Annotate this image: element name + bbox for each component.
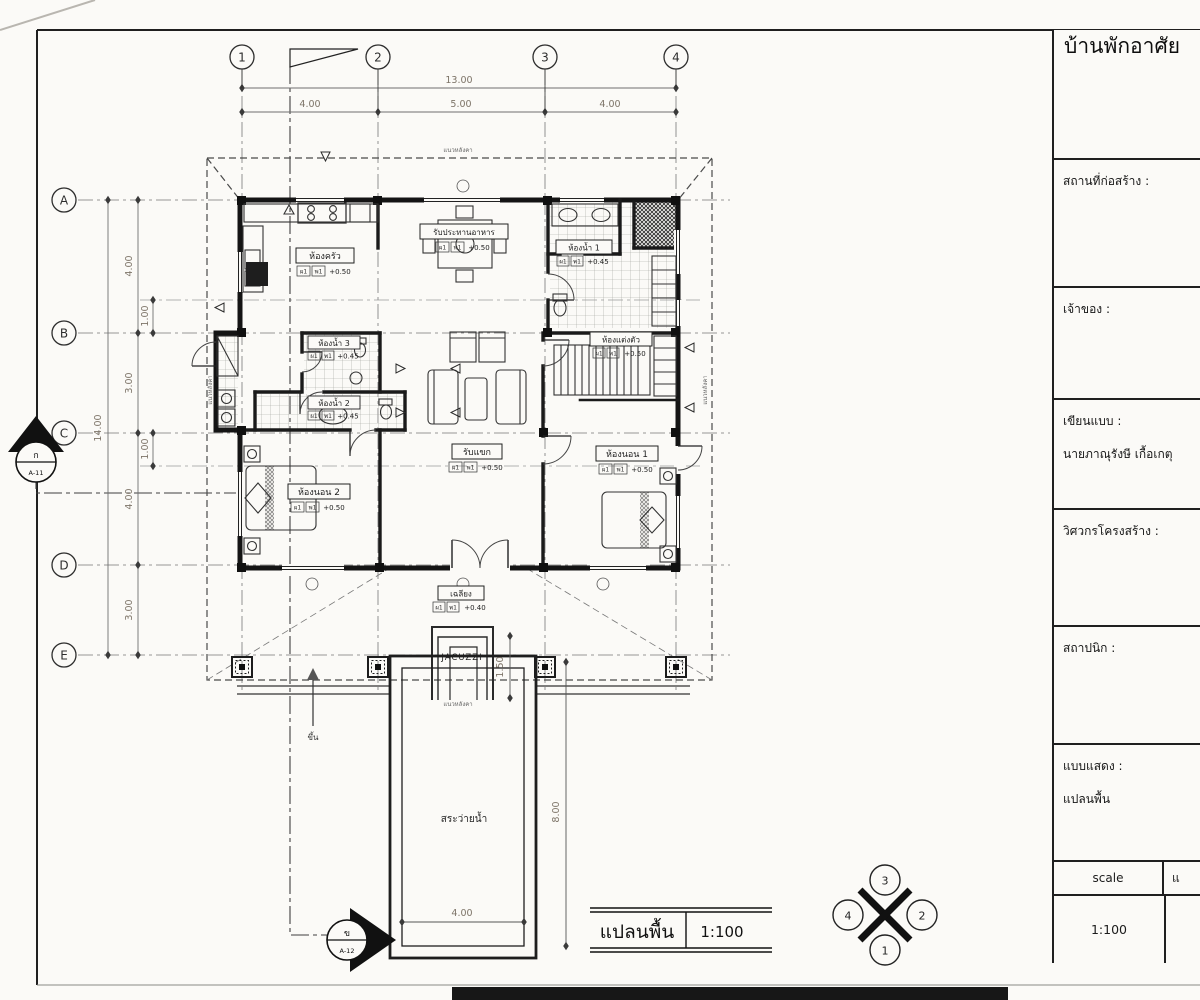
floor-code: พ1	[609, 351, 617, 358]
dimension-pool-width: 4.00	[399, 908, 527, 926]
title-block-scale-table: scale แ 1:100	[1054, 862, 1200, 963]
grid-row-e: E	[60, 649, 68, 663]
floor-code: พ1	[449, 605, 457, 612]
draftsman-label: เขียนแบบ :	[1054, 400, 1200, 431]
scan-edge-band	[452, 987, 1008, 1000]
dim-left-3: 4.00	[124, 488, 135, 509]
room-name: ห้องครัว	[309, 251, 341, 262]
title-block-drawing-type: แบบแสดง : แปลนพื้น	[1054, 745, 1200, 862]
floor-level: +0.45	[587, 258, 608, 266]
section-b-letter: ข	[344, 929, 350, 939]
dim-top-1: 4.00	[299, 99, 320, 110]
floor-code: พ1	[617, 467, 625, 474]
title-block-site: สถานที่ก่อสร้าง :	[1054, 160, 1200, 288]
section-lines	[36, 66, 329, 935]
elev-4: 4	[845, 910, 852, 923]
floor-code: พ1	[573, 259, 581, 266]
bedroom1-furniture	[602, 468, 676, 562]
drawing-sheet: แนวหลังคา แนวหลังคา แนวหลังคา แนวหลังคา	[0, 0, 1200, 1000]
title-block-architect: สถาปนิก :	[1054, 627, 1200, 745]
wall-code: ผ1	[452, 465, 460, 472]
wall-code: ผ1	[294, 505, 302, 512]
section-a-letter: ก	[33, 451, 38, 461]
scale-value: 1:100	[1054, 896, 1166, 963]
site-label: สถานที่ก่อสร้าง :	[1054, 160, 1200, 191]
grid-row-c: C	[60, 427, 68, 441]
drawing-title: แปลนพื้น 1:100	[590, 908, 772, 952]
floor-code: พ1	[454, 245, 462, 252]
wall-code: ผ1	[439, 245, 447, 252]
wall-code: ผ1	[435, 605, 443, 612]
dim-sub-1: 1.00	[140, 305, 151, 326]
dim-top-3: 4.00	[599, 99, 620, 110]
title-block-engineer: วิศวกรโครงสร้าง :	[1054, 510, 1200, 627]
roof-line-label-bottom: แนวหลังคา	[443, 701, 472, 708]
floor-level: +0.50	[624, 350, 645, 358]
room-label-kitchen: ห้องครัว ผ1 พ1 +0.50	[296, 248, 354, 276]
sheet-border	[0, 0, 1200, 1000]
drawing-type-value: แปลนพื้น	[1054, 776, 1200, 809]
title-block-draftsman: เขียนแบบ : นายภาณุรังษี เกื้อเกตุ	[1054, 400, 1200, 510]
project-title: บ้านพักอาศัย	[1054, 30, 1180, 58]
section-a-ref: A-11	[29, 469, 44, 477]
dim-sub-2: 1.00	[140, 438, 151, 459]
engineer-label: วิศวกรโครงสร้าง :	[1054, 510, 1200, 541]
roof-line-label-right: แนวหลังคา	[702, 375, 709, 404]
room-label-porch: เฉลียง ผ1 พ1 +0.40	[433, 586, 486, 612]
pool-label: สระว่ายน้ำ	[441, 811, 487, 825]
owner-label: เจ้าของ :	[1054, 288, 1200, 319]
dimensions-top: 13.00 4.00 5.00 4.00	[239, 75, 679, 116]
main-entrance-door	[450, 540, 510, 572]
grid-row-d: D	[59, 559, 68, 573]
grid-row-b: B	[60, 327, 68, 341]
dining-table	[423, 206, 506, 282]
room-label-dining: รับประทานอาหาร ผ1 พ1 +0.50	[420, 224, 508, 252]
dimensions-left: 14.00 4.00 3.00 4.00 3.00 1.00 1.00	[93, 196, 156, 659]
dim-pool-h: 8.00	[551, 801, 562, 822]
grid-col-4: 4	[672, 51, 680, 65]
room-name: ห้องนอน 2	[298, 487, 340, 498]
dim-left-4: 3.00	[124, 599, 135, 620]
floor-code: พ1	[324, 353, 332, 360]
room-name: ห้องแต่งตัว	[602, 336, 640, 345]
elev-3: 3	[882, 875, 889, 888]
dim-porch: 1.50	[495, 656, 506, 677]
up-label: ขึ้น	[308, 731, 319, 742]
grid-col-3: 3	[541, 51, 549, 65]
grid-lines	[78, 70, 730, 690]
floor-code: พ1	[324, 413, 332, 420]
dim-top-total: 13.00	[445, 75, 472, 86]
dim-pool-w: 4.00	[451, 908, 472, 919]
floor-level: +0.50	[481, 464, 502, 472]
title-block-project: บ้านพักอาศัย	[1054, 30, 1200, 160]
sheet-header: แ	[1164, 862, 1200, 896]
dim-left-1: 4.00	[124, 255, 135, 276]
scale-header: scale	[1054, 862, 1164, 896]
title-block: บ้านพักอาศัย สถานที่ก่อสร้าง : เจ้าของ :…	[1052, 30, 1200, 963]
floor-level: +0.50	[323, 504, 344, 512]
draftsman-name: นายภาณุรังษี เกื้อเกตุ	[1054, 431, 1200, 464]
floor-code: พ1	[467, 465, 475, 472]
section-b-ref: A-12	[340, 947, 355, 955]
room-name: ห้องน้ำ 1	[568, 242, 600, 253]
room-label-dressing: ห้องแต่งตัว ผ1 พ1 +0.50	[590, 332, 652, 358]
dim-top-2: 5.00	[450, 99, 471, 110]
dim-left-2: 3.00	[124, 372, 135, 393]
room-label-bath2: ห้องน้ำ 2 ผ1 พ1 +0.45	[308, 396, 360, 421]
wall-code: ผ1	[595, 351, 603, 358]
jacuzzi-label: JACUZZI	[440, 653, 482, 663]
bedroom2-furniture	[244, 446, 316, 554]
room-name: รับประทานอาหาร	[433, 228, 495, 237]
drawing-title-scale: 1:100	[700, 923, 743, 941]
room-label-living: รับแขก ผ1 พ1 +0.50	[449, 444, 503, 472]
section-flag	[290, 49, 358, 67]
dim-left-total: 14.00	[93, 414, 104, 441]
wall-code: ผ1	[602, 467, 610, 474]
grid-col-2: 2	[374, 51, 382, 65]
room-name: ห้องน้ำ 2	[318, 397, 350, 408]
grid-col-1: 1	[238, 51, 246, 65]
floor-level: +0.40	[464, 604, 485, 612]
drawing-title-text: แปลนพื้น	[600, 918, 674, 943]
floor-level: +0.50	[631, 466, 652, 474]
title-block-owner: เจ้าของ :	[1054, 288, 1200, 400]
steps-up: ขึ้น	[307, 668, 319, 742]
room-name: รับแขก	[463, 448, 491, 458]
floor-plan-canvas: แนวหลังคา แนวหลังคา แนวหลังคา แนวหลังคา	[0, 0, 1200, 1000]
room-name: เฉลียง	[450, 590, 472, 599]
living-furniture	[428, 332, 526, 424]
shower-hatch	[634, 202, 676, 248]
section-marker-b: ข A-12	[327, 908, 396, 972]
dimension-porch: 1.50	[495, 632, 513, 702]
room-name: ห้องน้ำ 3	[318, 337, 350, 348]
elevation-key: 3 2 1 4	[833, 865, 937, 965]
wall-code: ผ1	[300, 269, 308, 276]
wall-code: ผ1	[310, 413, 318, 420]
room-label-bedroom1: ห้องนอน 1 ผ1 พ1 +0.50	[596, 446, 658, 474]
room-label-bath3: ห้องน้ำ 3 ผ1 พ1 +0.45	[308, 336, 360, 361]
elev-1: 1	[882, 945, 889, 958]
floor-level: +0.50	[329, 268, 350, 276]
elev-2: 2	[919, 910, 926, 923]
wall-code: ผ1	[559, 259, 567, 266]
floor-level: +0.45	[337, 353, 358, 361]
floor-level: +0.45	[337, 413, 358, 421]
roof-line-label-top: แนวหลังคา	[443, 147, 472, 154]
room-name: ห้องนอน 1	[606, 449, 648, 460]
floor-code: พ1	[315, 269, 323, 276]
dimension-pool-height: 8.00	[551, 658, 569, 950]
jacuzzi	[432, 627, 493, 700]
wall-code: ผ1	[310, 353, 318, 360]
sheet-value	[1164, 896, 1200, 963]
roof-line-label-left: แนวหลังคา	[207, 375, 214, 404]
drawing-type-label: แบบแสดง :	[1054, 745, 1200, 776]
room-label-bedroom2: ห้องนอน 2 ผ1 พ1 +0.50	[288, 484, 350, 512]
grid-row-a: A	[60, 194, 69, 208]
architect-label: สถาปนิก :	[1054, 627, 1200, 658]
floor-level: +0.50	[468, 244, 489, 252]
floor-code: พ1	[309, 505, 317, 512]
